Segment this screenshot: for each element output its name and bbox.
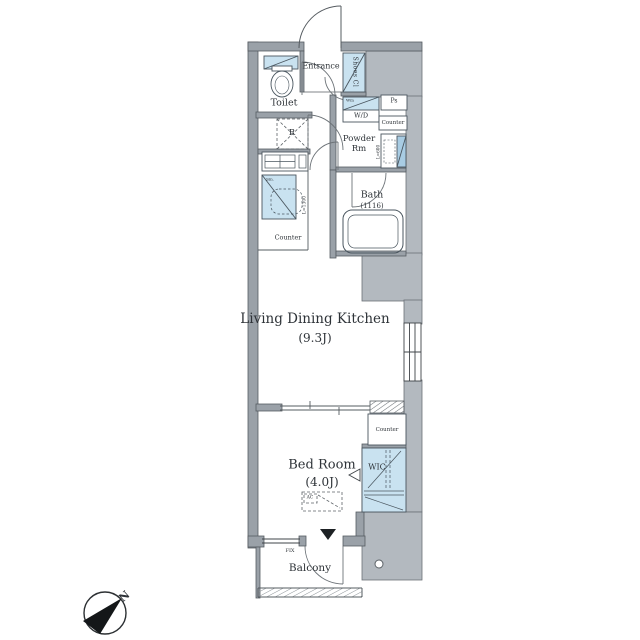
label-sink: Sin. [266,178,274,183]
label-shoes-closet: Shoes Cl [351,57,358,88]
fix-window-lines [262,539,300,543]
label-ldk: Living Dining Kitchen [240,312,389,328]
label-toilet: Toilet [271,99,298,110]
label-counter-bedroom: Counter [376,427,399,433]
label-fix-window: FIX [285,549,294,555]
label-vanity-length: L=600 [377,145,382,159]
direction-marker-icon [320,529,336,540]
label-washer-dryer: W/D [354,112,368,119]
label-refrigerator: R [289,129,295,139]
balcony-railing [258,588,362,597]
label-bath-size: (1116) [360,202,383,210]
label-entrance: Entrance [302,61,339,70]
label-counter-powder: Counter [382,120,405,126]
label-ac: AC [307,495,314,500]
drain-cap-icon [375,560,383,568]
entrance-door-arc [299,6,341,48]
label-bath: Bath [361,191,384,202]
label-bedroom: Bed Room [288,459,355,474]
wic-closet [362,448,406,512]
label-ldk-size: (9.3J) [298,332,331,346]
label-wic: WIC [368,462,386,471]
toilet-fixture [264,56,298,97]
sliding-door-pocket-hatch [370,401,404,413]
floorplan-page: Entrance Shoes Cl Toilet Wm W/D Ps Count… [0,0,640,640]
label-pipe-space: Ps [391,99,398,106]
bathtub [343,210,403,253]
label-bedroom-size: (4.0J) [305,476,338,490]
kitchen-stove [262,152,308,171]
label-kitchen-counter-length: L=1300 [302,196,307,214]
label-balcony: Balcony [289,562,331,574]
label-washing-machine: Wm [346,99,354,104]
label-counter-kitchen: Counter [275,234,302,241]
sliding-door-track [280,401,370,415]
ldk-window [404,323,421,381]
vanity-unit [381,134,406,168]
